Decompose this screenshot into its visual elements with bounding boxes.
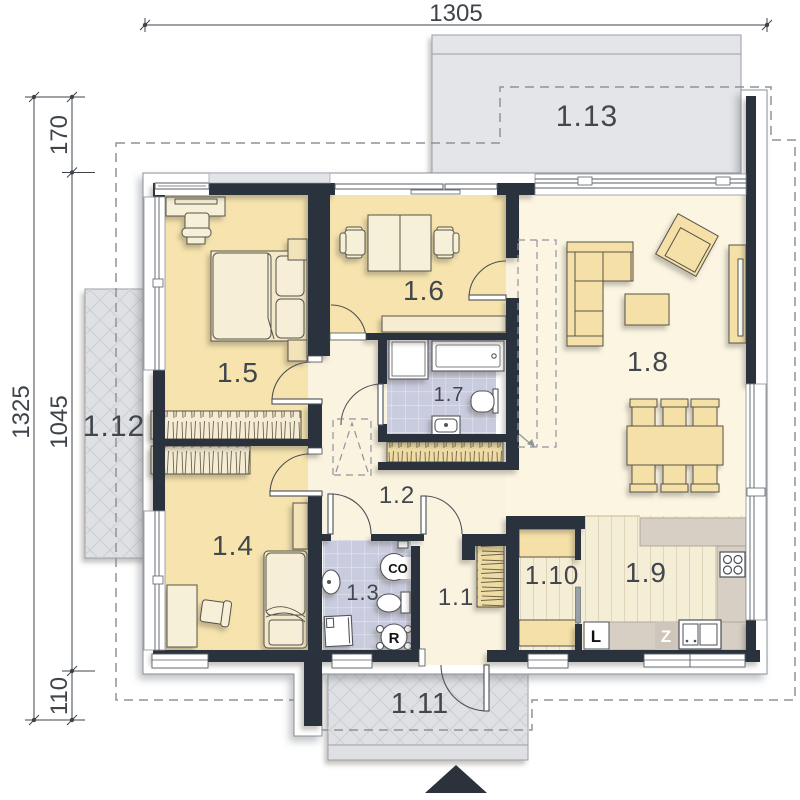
svg-text:1.10: 1.10	[525, 560, 580, 590]
svg-text:L: L	[591, 627, 601, 646]
svg-text:1.7: 1.7	[434, 384, 465, 406]
svg-text:1.5: 1.5	[217, 357, 259, 388]
svg-text:1.1: 1.1	[438, 584, 474, 611]
svg-text:1.8: 1.8	[627, 346, 669, 377]
svg-text:170: 170	[46, 115, 73, 155]
svg-text:1.6: 1.6	[403, 275, 445, 306]
svg-text:1.3: 1.3	[346, 580, 380, 605]
svg-text:Z: Z	[661, 627, 671, 646]
svg-text:CO: CO	[388, 561, 408, 576]
svg-text:1.12: 1.12	[83, 410, 145, 443]
svg-text:1305: 1305	[429, 0, 482, 27]
svg-text:1.9: 1.9	[625, 557, 667, 588]
svg-text:1.13: 1.13	[556, 100, 618, 133]
svg-text:R: R	[389, 630, 400, 647]
svg-text:1045: 1045	[46, 395, 73, 448]
svg-text:1.2: 1.2	[379, 482, 415, 509]
svg-text:1.4: 1.4	[212, 530, 254, 561]
svg-text:1.11: 1.11	[391, 688, 449, 720]
svg-text:110: 110	[46, 677, 73, 715]
svg-text:1325: 1325	[8, 385, 35, 438]
